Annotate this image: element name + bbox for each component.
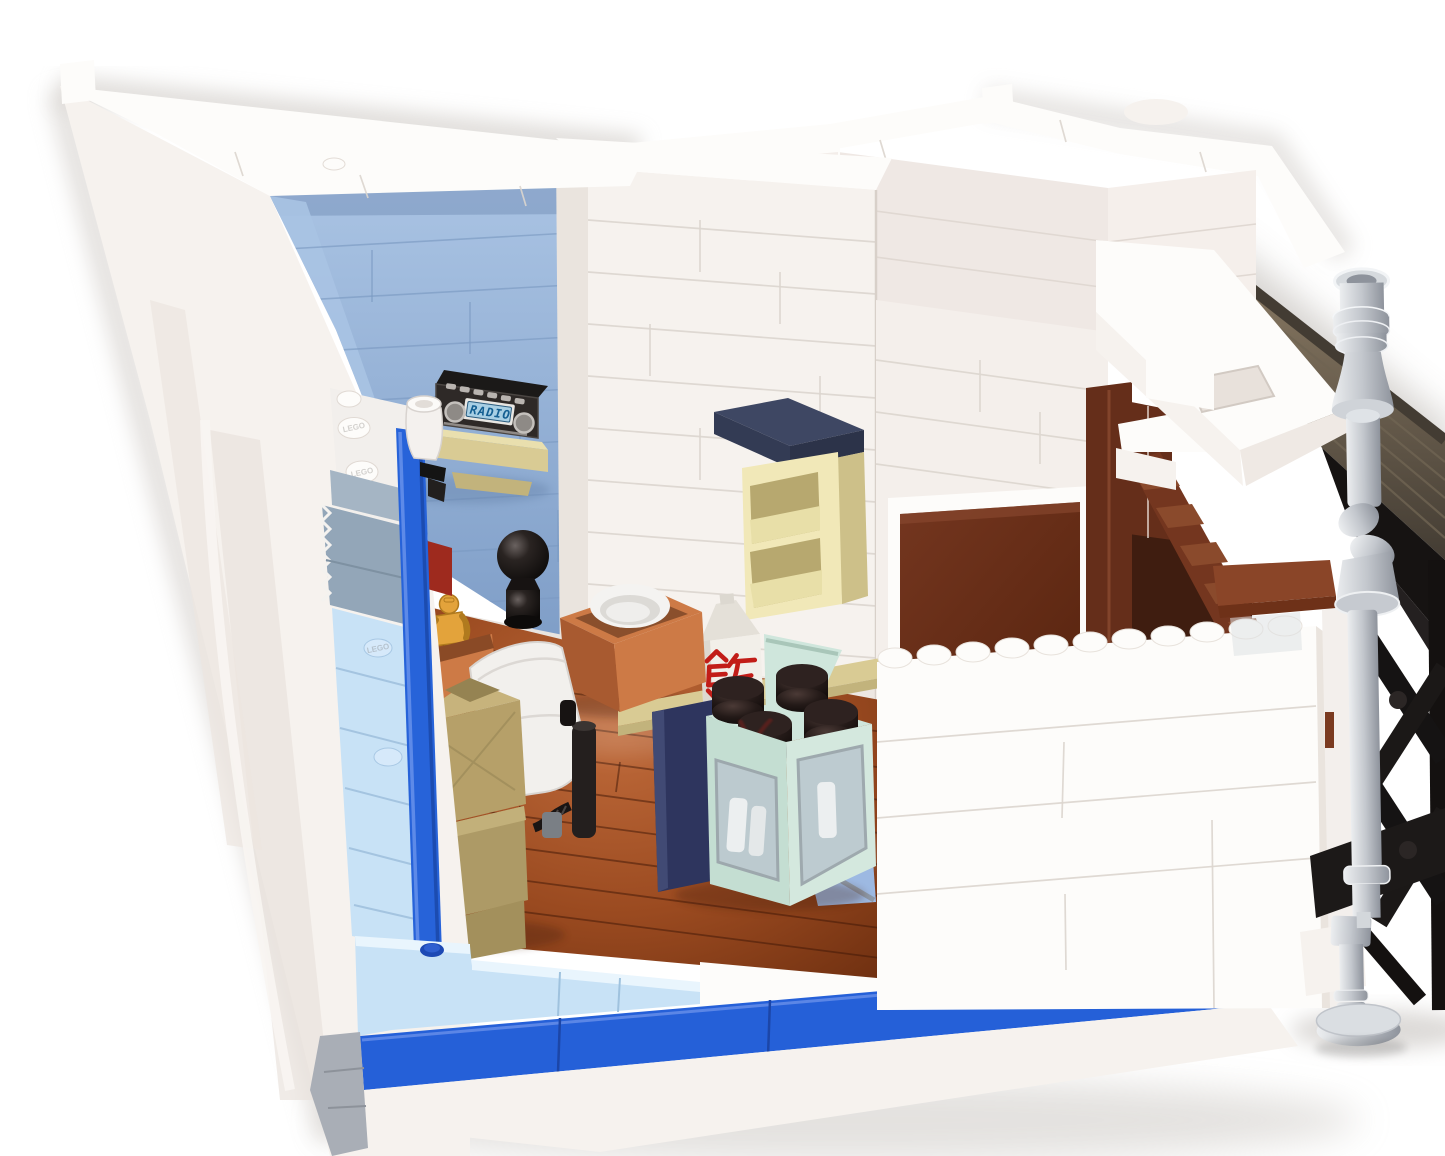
parapet-curved-tile <box>1124 99 1188 125</box>
radio-speaker-right <box>515 414 534 433</box>
lego-interior-render: RADIO <box>0 0 1445 1156</box>
red-sliver <box>1325 712 1334 748</box>
front-right-wall <box>877 616 1338 1010</box>
coping-stud <box>323 158 345 170</box>
corner-post <box>60 60 96 104</box>
partition-side <box>556 150 588 688</box>
parapet-post <box>982 84 1014 124</box>
render-canvas: RADIO <box>0 0 1445 1156</box>
light-blue-stud <box>374 748 402 766</box>
front-wall-face <box>877 626 1322 1010</box>
radio-speaker-left <box>446 403 465 422</box>
glass-door-left <box>716 760 778 880</box>
clear-brick <box>1230 612 1302 656</box>
